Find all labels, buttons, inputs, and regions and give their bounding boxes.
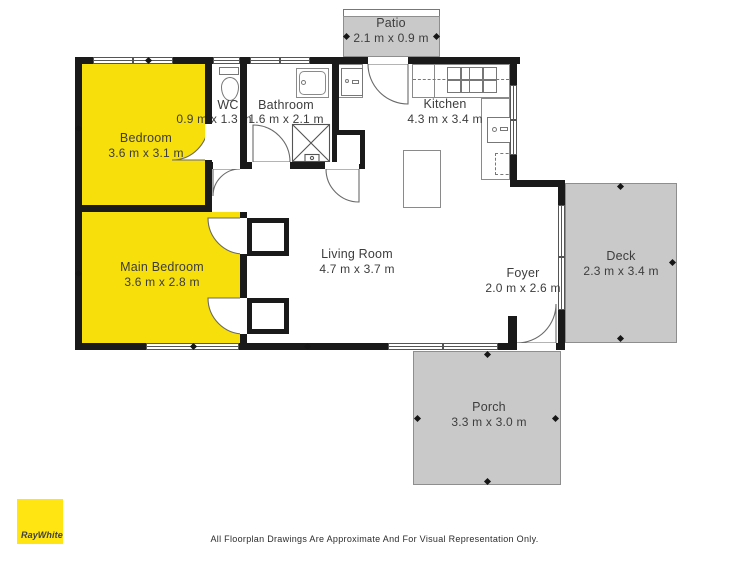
doors-and-shower-layer bbox=[0, 0, 749, 562]
label-porch: Porch 3.3 m x 3.0 m bbox=[451, 400, 526, 430]
room-name: Main Bedroom bbox=[120, 260, 204, 275]
wc-door-arc bbox=[213, 169, 240, 196]
label-living-room: Living Room 4.7 m x 3.7 m bbox=[319, 247, 394, 277]
wall-wc-right bbox=[240, 64, 247, 169]
room-name: WC bbox=[217, 98, 238, 113]
hall-door-opening bbox=[325, 162, 359, 169]
room-name: Kitchen bbox=[407, 97, 482, 112]
wardrobe-lower bbox=[247, 298, 289, 334]
hall-living-door-arc bbox=[326, 169, 359, 202]
window bbox=[146, 343, 193, 350]
bedroom-door-opening bbox=[205, 124, 212, 160]
room-dims: 4.7 m x 3.7 m bbox=[319, 262, 394, 277]
wc-door-opening bbox=[213, 162, 240, 169]
room-dims: 3.6 m x 3.1 m bbox=[108, 146, 183, 161]
wardrobe-upper bbox=[247, 218, 289, 256]
window bbox=[510, 120, 517, 155]
bathroom-door-arc bbox=[253, 125, 290, 162]
disclaimer-text: All Floorplan Drawings Are Approximate A… bbox=[0, 534, 749, 544]
label-bathroom-dims: 1.6 m x 2.1 m bbox=[248, 112, 323, 127]
label-wc: WC bbox=[217, 98, 238, 113]
window bbox=[388, 343, 443, 350]
room-dims: 2.3 m x 3.4 m bbox=[583, 264, 658, 279]
room-name: Porch bbox=[451, 400, 526, 415]
label-kitchen: Kitchen 4.3 m x 3.4 m bbox=[407, 97, 482, 127]
window bbox=[280, 57, 310, 64]
window bbox=[93, 57, 133, 64]
label-patio: Patio 2.1 m x 0.9 m bbox=[353, 16, 428, 46]
wall-left bbox=[75, 57, 82, 350]
window bbox=[213, 57, 240, 64]
bathroom-door-opening bbox=[252, 162, 290, 169]
sliding-door bbox=[558, 205, 565, 257]
window bbox=[510, 85, 517, 120]
room-dims: 3.3 m x 3.0 m bbox=[451, 415, 526, 430]
room-name: Bedroom bbox=[108, 131, 183, 146]
room-dims: 4.3 m x 3.4 m bbox=[407, 112, 482, 127]
room-dims: 2.0 m x 2.6 m bbox=[485, 281, 560, 296]
window bbox=[443, 343, 498, 350]
window bbox=[250, 57, 280, 64]
wall-foyer-stub bbox=[508, 316, 517, 343]
entry-door-arc bbox=[517, 304, 556, 343]
room-name: Deck bbox=[583, 249, 658, 264]
room-name: Foyer bbox=[485, 266, 560, 281]
wardrobe-door-opening bbox=[240, 298, 247, 334]
window bbox=[193, 343, 239, 350]
wall-bathroom-right bbox=[332, 64, 339, 130]
patio-door-arc bbox=[368, 64, 408, 104]
room-dims: 3.6 m x 2.8 m bbox=[120, 275, 204, 290]
label-deck: Deck 2.3 m x 3.4 m bbox=[583, 249, 658, 279]
wardrobe-door-arc bbox=[208, 298, 244, 334]
wall-jut bbox=[510, 180, 565, 187]
wall-bedroom-divider bbox=[82, 205, 212, 212]
room-name: Living Room bbox=[319, 247, 394, 262]
main-bedroom-door-arc bbox=[208, 218, 244, 254]
floorplan-canvas: Patio 2.1 m x 0.9 m Bedroom 3.6 m x 3.1 … bbox=[0, 0, 749, 562]
room-name: Bathroom bbox=[258, 98, 314, 113]
label-foyer: Foyer 2.0 m x 2.6 m bbox=[485, 266, 560, 296]
window bbox=[133, 57, 173, 64]
entry-door-opening bbox=[517, 343, 556, 350]
room-dims: 2.1 m x 0.9 m bbox=[353, 31, 428, 46]
main-bedroom-door-opening bbox=[240, 218, 247, 254]
label-bedroom: Bedroom 3.6 m x 3.1 m bbox=[108, 131, 183, 161]
label-bathroom: Bathroom bbox=[258, 98, 314, 113]
patio-door-opening bbox=[368, 57, 408, 64]
room-name: Patio bbox=[353, 16, 428, 31]
shower-drain-dot bbox=[310, 156, 313, 159]
label-main-bedroom: Main Bedroom 3.6 m x 2.8 m bbox=[120, 260, 204, 290]
